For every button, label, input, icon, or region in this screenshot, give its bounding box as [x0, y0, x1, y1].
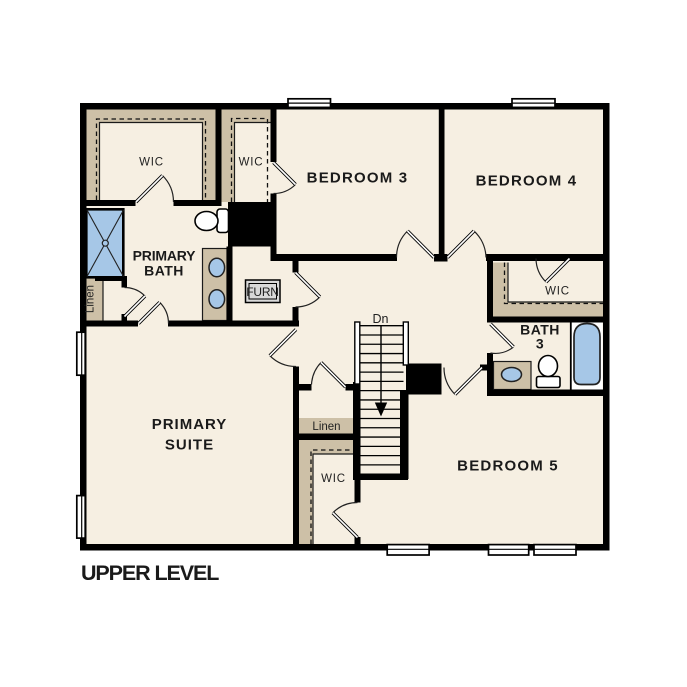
svg-text:PRIMARY: PRIMARY: [152, 416, 228, 433]
svg-text:BEDROOM 5: BEDROOM 5: [457, 458, 559, 475]
svg-text:BEDROOM 3: BEDROOM 3: [307, 170, 409, 187]
svg-text:UPPER LEVEL: UPPER LEVEL: [81, 561, 219, 585]
svg-text:3: 3: [536, 336, 544, 352]
svg-text:Linen: Linen: [85, 285, 97, 313]
svg-text:BATH: BATH: [144, 262, 184, 278]
svg-text:BEDROOM 4: BEDROOM 4: [476, 173, 578, 190]
svg-text:WIC: WIC: [139, 157, 164, 169]
svg-text:WIC: WIC: [545, 286, 570, 298]
svg-text:FURN: FURN: [246, 285, 279, 299]
svg-text:WIC: WIC: [239, 157, 264, 169]
svg-text:SUITE: SUITE: [165, 437, 214, 454]
svg-text:Linen: Linen: [312, 421, 340, 433]
svg-text:Dn: Dn: [373, 312, 389, 326]
svg-text:WIC: WIC: [321, 473, 346, 485]
svg-text:PRIMARY: PRIMARY: [133, 248, 197, 264]
